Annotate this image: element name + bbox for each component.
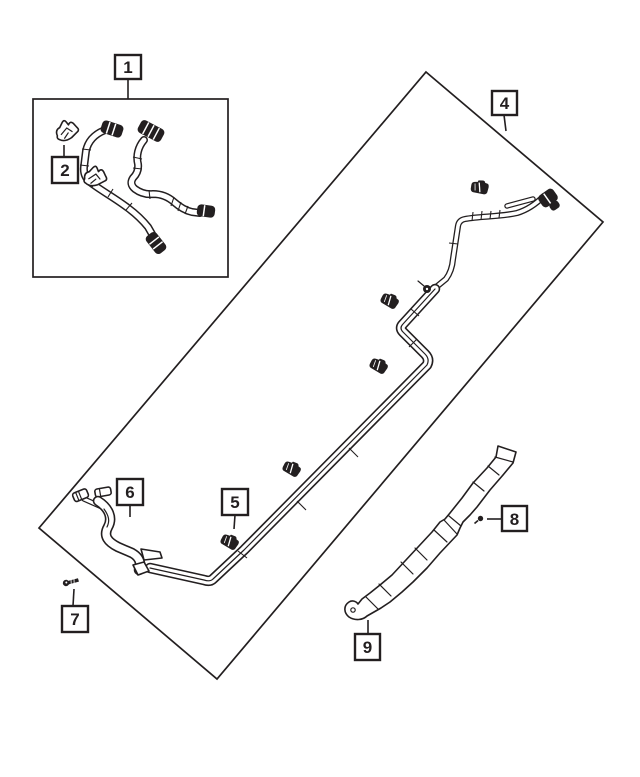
bundle-stub-fitting — [418, 281, 431, 293]
rivet-part8-drawing — [475, 516, 484, 524]
line-clip-drawing-a — [470, 179, 489, 195]
part6-tube-cap-right — [94, 487, 111, 498]
callout-5[interactable]: 5 — [222, 489, 248, 529]
callout-1[interactable]: 1 — [115, 55, 141, 99]
line-clip-part5-drawing — [219, 531, 241, 551]
inset-box-hose-assembly — [33, 99, 228, 277]
callout-9-label: 9 — [363, 638, 372, 657]
callout-4-label: 4 — [500, 94, 510, 113]
callout-5-leader — [234, 515, 235, 529]
line-clip-drawing-d — [281, 458, 303, 478]
rotated-diagram-boundary — [39, 72, 603, 679]
bundle-end-connector — [537, 187, 564, 215]
hose-clip-part2-drawing — [56, 120, 80, 142]
callout-7[interactable]: 7 — [62, 589, 88, 632]
callout-9[interactable]: 9 — [355, 620, 380, 660]
callout-4[interactable]: 4 — [492, 91, 517, 131]
line-shield-part9-drawing — [345, 446, 516, 620]
callout-2[interactable]: 2 — [52, 145, 78, 183]
callout-7-leader — [73, 589, 74, 606]
callout-8-label: 8 — [510, 510, 519, 529]
fuel-lines-parts-diagram: 1 2 4 5 6 7 8 9 — [0, 0, 640, 777]
callout-5-label: 5 — [230, 493, 239, 512]
callout-2-label: 2 — [60, 161, 69, 180]
callout-6-label: 6 — [125, 483, 134, 502]
parts-diagram-page: 1 2 4 5 6 7 8 9 — [0, 0, 640, 777]
part6-bracket-flag — [141, 549, 162, 560]
line-clip-drawing-c — [368, 355, 390, 375]
right-hose-drawing — [131, 119, 215, 218]
screw-part7-drawing — [62, 578, 79, 587]
callout-7-label: 7 — [70, 610, 79, 629]
callout-1-label: 1 — [123, 58, 132, 77]
callout-6[interactable]: 6 — [117, 479, 143, 517]
callout-8[interactable]: 8 — [487, 506, 527, 531]
left-hose-top-connector — [100, 119, 125, 138]
line-clip-drawing-b — [379, 290, 401, 310]
callout-4-leader — [504, 115, 506, 131]
